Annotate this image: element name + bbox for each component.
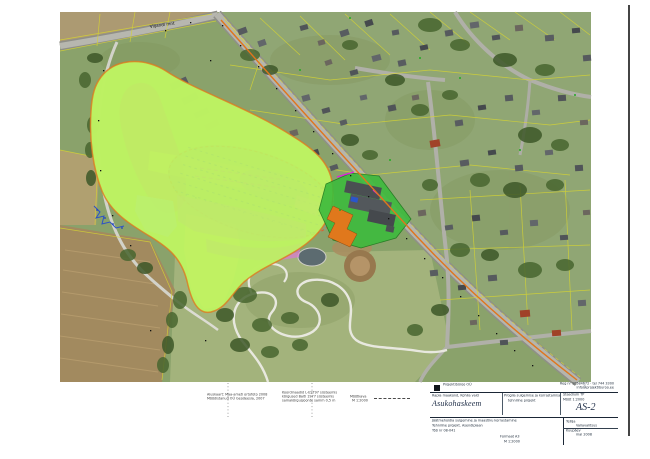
title-block-vsep <box>563 417 564 445</box>
scale-dash-line <box>374 398 410 399</box>
scale-label: Mõõt 1:2000 <box>563 398 584 402</box>
company-logo <box>434 385 440 391</box>
stage-label: Staadium TP <box>563 393 584 397</box>
date-value: mai 2008 <box>576 433 592 437</box>
title-block-vsep <box>560 393 561 415</box>
note-line: M 1:2000 <box>352 399 368 403</box>
sheet-title: Asukohaskeem <box>432 399 482 408</box>
title-block-vsep <box>502 393 503 415</box>
company-contact: info@projektiburoo.ee <box>577 386 614 390</box>
dirt-ring-center <box>350 256 370 276</box>
title-block: Projektibüroo OÜ Reg nr 10584672 · tel 7… <box>430 382 618 452</box>
pond <box>298 248 326 266</box>
work-number: Töö nr 08-041 <box>432 429 455 433</box>
project-name: Jäätmehoidla sulgemine ja maastiku korra… <box>432 419 517 423</box>
project-line-1: Prügila sulgemise ja korrastamise <box>504 394 561 398</box>
client-label: Tellija <box>566 420 575 424</box>
sheet-code: AS-2 <box>576 402 595 413</box>
location-label: Rapla maakond, Kohila vald <box>432 394 479 398</box>
project-subtitle: Tehniline projekt. Asendiplaan <box>432 424 483 428</box>
format-scale: M 1:2000 <box>504 440 520 444</box>
project-line-2: tehniline projekt <box>508 399 536 403</box>
note-line: Mõõdistanud OÜ Geodeesia, 2007 <box>207 397 265 401</box>
note-line: samakõrgusjoonte samm 0,5 m <box>282 399 335 403</box>
company-name: Projektibüroo OÜ <box>443 383 472 387</box>
format-label: Formaat A3 <box>500 435 520 439</box>
title-block-rule <box>430 417 618 418</box>
